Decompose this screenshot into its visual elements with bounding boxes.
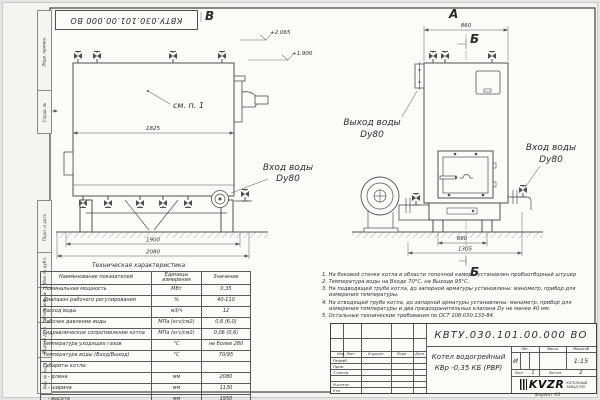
- dim-2080: 2080: [146, 250, 160, 256]
- spec-header-row: Наименование показателей Единицы измерен…: [41, 272, 251, 285]
- title-block: КВТУ.030.101.00.000 ВО Изм. Лист N докум…: [330, 323, 597, 394]
- view-label-a: А: [448, 7, 458, 21]
- product-model: КВр -0,35 КБ (РВР): [426, 362, 511, 374]
- frame-strip-podp-data-1: Подп. и дата: [37, 200, 52, 254]
- elevation-1900: +1.900: [292, 51, 313, 57]
- spec-row: Номинальная мощностьМВт0,35: [41, 285, 251, 296]
- notes-section: 1. На боковой стенке котла в области топ…: [322, 272, 595, 320]
- inlet-water-size: Dy80: [276, 174, 300, 184]
- logo-text: KVZR: [529, 378, 564, 391]
- mass-label: Масса: [539, 346, 566, 352]
- frame-strip-perv-primen: Перв. примен.: [37, 10, 52, 92]
- spec-row: - высотамм1950: [41, 395, 251, 400]
- lit-value: И: [511, 352, 520, 369]
- spec-table: Наименование показателей Единицы измерен…: [40, 271, 251, 400]
- spec-row: Температура уходящих газов°Сне более 280: [41, 340, 251, 351]
- dim-860: 860: [461, 23, 472, 29]
- inlet-water-label: Вход воды: [263, 163, 313, 173]
- sheets-label: Листов: [539, 369, 571, 376]
- note-reference: см. п. 1: [173, 101, 204, 110]
- inverted-doc-number-stamp: КВТУ.030.101.00.000 ВО: [55, 10, 198, 30]
- dim-1825: 1825: [146, 126, 160, 132]
- frame-strip-sprav-n: Справ. №: [37, 90, 52, 134]
- sheet-label: Лист: [511, 369, 527, 376]
- company-name: КОТЕЛЬНЫЙ ЗАВОД РЭП: [566, 381, 587, 389]
- outlet-water-size: Dy80: [360, 130, 384, 140]
- section-label-v: В: [205, 9, 214, 23]
- format-label: Формат А3: [500, 393, 595, 398]
- note-4: 4. На отводящей трубе котла, до запорной…: [322, 300, 595, 312]
- row-utv: Утв.: [331, 387, 363, 393]
- drawing-sheet: 1825 1900 2080 +2.065 +1.900 см. п. 1 А …: [0, 0, 600, 400]
- col-n-dokum: N докум.: [361, 351, 391, 357]
- col-podp: Подп.: [391, 351, 413, 357]
- sheets-value: 2: [571, 369, 591, 376]
- dim-1305: 1305: [458, 247, 472, 253]
- inlet-water-size-right: Dy80: [539, 155, 563, 165]
- spec-table-section: Техническая характеристика Наименование …: [40, 262, 237, 400]
- sheet-value: 1: [527, 369, 539, 376]
- col-data: Дата: [413, 351, 426, 357]
- elevation-2065: +2.065: [270, 30, 291, 36]
- dim-660: 660: [457, 236, 468, 242]
- scale-value: 1:15: [566, 352, 596, 369]
- section-label-b-top: Б: [470, 32, 479, 46]
- note-2: 2. Температура воды на Входе 70°С, на Вы…: [322, 279, 595, 285]
- spec-row: Температура воды (Вход/Выход)°С70/95: [41, 351, 251, 362]
- doc-number-inverted: КВТУ.030.101.00.000 ВО: [70, 16, 182, 25]
- spec-row: - ширинамм1130: [41, 384, 251, 395]
- outlet-water-label: Выход воды: [343, 118, 400, 128]
- dim-1900: 1900: [146, 238, 160, 244]
- spec-row: - длинамм2080: [41, 373, 251, 384]
- note-1: 1. На боковой стенке котла в области топ…: [322, 272, 595, 278]
- spec-row: Диапазон рабочего регулирования%40-110: [41, 296, 251, 307]
- spec-row: Гидравлическое сопротивление котлаМПа (к…: [41, 329, 251, 340]
- spec-table-title: Техническая характеристика: [40, 262, 237, 269]
- logo-bars-icon: [520, 379, 527, 390]
- spec-row: Рабочее давление водыМПа (кгс/см2)0,6 (6…: [41, 318, 251, 329]
- note-3: 3. На подводящей трубе котла, до запорно…: [322, 286, 595, 298]
- inlet-water-label-right: Вход воды: [526, 143, 576, 153]
- company-logo-area: KVZR КОТЕЛЬНЫЙ ЗАВОД РЭП: [511, 376, 596, 393]
- note-5: 5. Остальные технические требования по О…: [322, 313, 595, 319]
- spec-row: Расход водым3/ч12: [41, 307, 251, 318]
- spec-row: Габариты котла:: [41, 362, 251, 373]
- title-block-doc-number: КВТУ.030.101.00.000 ВО: [426, 324, 596, 346]
